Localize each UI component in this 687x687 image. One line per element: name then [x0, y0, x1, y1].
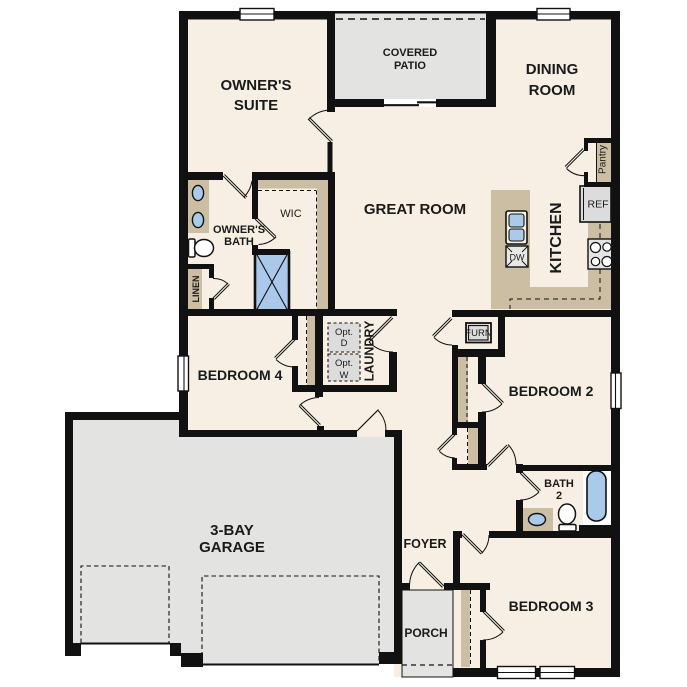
- svg-text:KITCHEN: KITCHEN: [548, 202, 565, 273]
- svg-text:REF: REF: [588, 199, 609, 211]
- svg-text:Pantry: Pantry: [598, 145, 609, 174]
- svg-text:DW: DW: [510, 253, 525, 263]
- svg-text:Opt.: Opt.: [335, 358, 353, 369]
- svg-text:COVERED: COVERED: [383, 47, 437, 59]
- svg-text:BEDROOM 2: BEDROOM 2: [509, 383, 594, 399]
- svg-text:LAUNDRY: LAUNDRY: [363, 320, 377, 381]
- svg-text:3-BAY: 3-BAY: [210, 522, 254, 539]
- svg-text:PORCH: PORCH: [404, 626, 447, 640]
- svg-text:OWNER'S: OWNER'S: [213, 224, 265, 236]
- svg-text:WIC: WIC: [280, 208, 301, 220]
- svg-text:BATH: BATH: [224, 236, 254, 248]
- svg-text:GARAGE: GARAGE: [199, 539, 265, 556]
- svg-text:FOYER: FOYER: [403, 537, 446, 551]
- svg-text:D: D: [341, 338, 348, 349]
- svg-text:Opt.: Opt.: [335, 327, 353, 338]
- svg-text:ROOM: ROOM: [529, 82, 576, 99]
- svg-text:2: 2: [556, 490, 562, 502]
- svg-text:SUITE: SUITE: [234, 97, 278, 114]
- svg-text:W: W: [340, 370, 349, 381]
- svg-text:BEDROOM 3: BEDROOM 3: [509, 598, 594, 614]
- svg-text:BEDROOM 4: BEDROOM 4: [198, 367, 283, 383]
- svg-text:DINING: DINING: [526, 61, 579, 78]
- svg-text:OWNER'S: OWNER'S: [220, 77, 291, 94]
- svg-text:BATH: BATH: [544, 478, 574, 490]
- svg-text:GREAT ROOM: GREAT ROOM: [364, 201, 466, 218]
- svg-text:PATIO: PATIO: [394, 60, 426, 72]
- svg-text:LINEN: LINEN: [191, 276, 201, 303]
- svg-text:FURN: FURN: [465, 328, 492, 339]
